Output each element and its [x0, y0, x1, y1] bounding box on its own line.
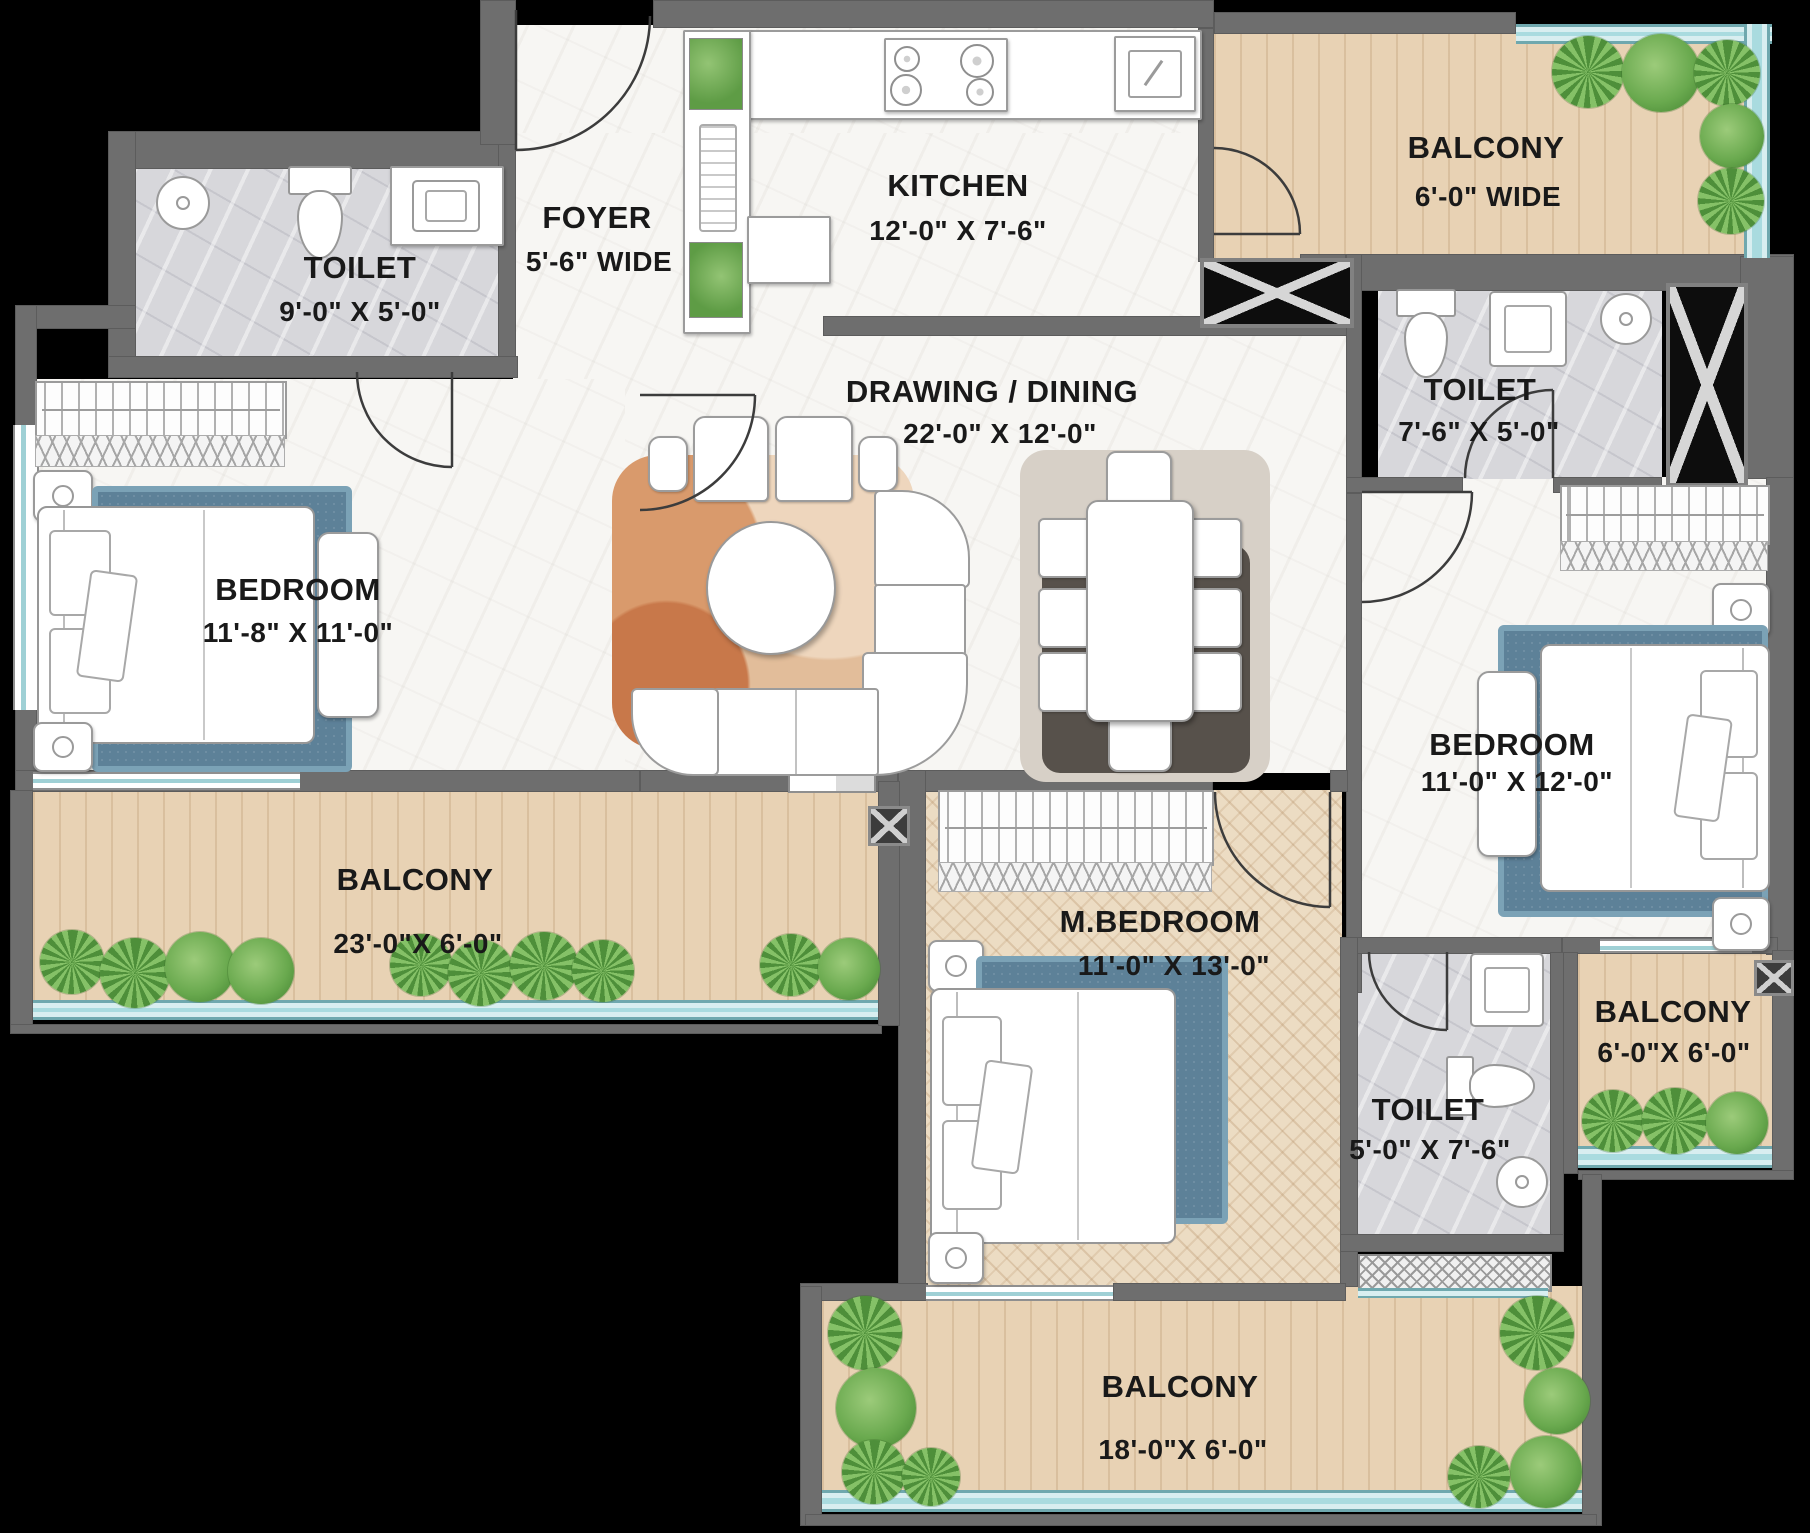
dining-chair — [1038, 588, 1092, 648]
bedroom1-dims: 11'-8" X 11'-0" — [203, 617, 394, 649]
wall — [805, 1514, 1597, 1526]
plant-icon — [902, 1448, 960, 1506]
plant-icon — [818, 938, 880, 1000]
wall — [108, 131, 136, 365]
duct-shaft-icon — [1666, 283, 1748, 487]
plant-icon — [1552, 36, 1624, 108]
wall — [108, 131, 516, 169]
wc-toilet-icon — [1396, 289, 1456, 381]
bedroom1-balcony-window — [33, 772, 300, 790]
floor-plan-canvas: TOILET 9'-0" X 5'-0" FOYER 5'-6" WIDE KI… — [0, 0, 1810, 1533]
wall — [1578, 1170, 1794, 1180]
toilet1-label: TOILET — [304, 250, 417, 286]
balcony3-dims: 6'-0"X 6'-0" — [1597, 1037, 1750, 1069]
plant-icon — [1700, 104, 1764, 168]
plant-icon — [1622, 34, 1700, 112]
wall — [800, 1286, 822, 1526]
balcony1-dims: 6'-0" WIDE — [1415, 181, 1561, 213]
side-table — [858, 436, 898, 492]
shower-icon — [156, 176, 210, 230]
plant-icon — [40, 930, 104, 994]
toilet3-window-sill — [1358, 1288, 1548, 1298]
wc-toilet-icon — [288, 166, 352, 262]
bedroom1-label: BEDROOM — [215, 572, 380, 608]
mbedroom-dims: 11'-0" X 13'-0" — [1078, 950, 1270, 982]
wall — [1562, 952, 1578, 1174]
wall — [1582, 1174, 1602, 1526]
dining-chair — [1188, 588, 1242, 648]
shower-icon — [1600, 293, 1652, 345]
wall — [108, 356, 518, 378]
wall — [480, 0, 516, 145]
kitchen-dims: 12'-0" X 7'-6" — [869, 215, 1047, 247]
wall — [1340, 1234, 1564, 1252]
bedroom2-dims: 11'-0" X 12'-0" — [1421, 766, 1613, 798]
bed-symbol — [930, 988, 1176, 1244]
bedroom1-window — [13, 425, 39, 710]
toilet3-louver-window — [1358, 1254, 1552, 1292]
plant-icon — [1642, 1088, 1708, 1154]
wall — [1346, 477, 1463, 493]
balcony4-dims: 18'-0"X 6'-0" — [1098, 1434, 1267, 1466]
nightstand — [33, 722, 93, 772]
coffee-table-icon — [706, 521, 836, 655]
washbasin-icon — [1470, 953, 1544, 1027]
toilet1-dims: 9'-0" X 5'-0" — [279, 296, 441, 328]
plant-icon — [572, 940, 634, 1002]
wall — [1214, 12, 1516, 34]
plant-icon — [1500, 1296, 1574, 1370]
washbasin-icon — [1489, 291, 1567, 367]
wardrobe-symbol — [1560, 485, 1770, 545]
wall — [898, 770, 926, 1288]
dining-table-icon — [1086, 500, 1194, 722]
wall — [653, 0, 1214, 28]
washbasin-icon — [412, 180, 480, 232]
plant-icon — [1582, 1090, 1644, 1152]
kitchen-sink-icon — [1114, 36, 1196, 112]
kitchen-tall-unit — [683, 30, 751, 334]
kitchen-cabinet — [747, 216, 831, 284]
foyer-label: FOYER — [542, 200, 651, 236]
balcony3-label: BALCONY — [1595, 994, 1752, 1030]
kitchen-label: KITCHEN — [887, 168, 1028, 204]
plant-icon — [828, 1296, 902, 1370]
balcony2-dims: 23'-0"X 6'-0" — [333, 928, 502, 960]
column-marker-icon — [868, 806, 910, 846]
plant-icon — [1510, 1436, 1582, 1508]
drawing-dining-dims: 22'-0" X 12'-0" — [903, 418, 1097, 450]
plant-icon — [836, 1368, 916, 1448]
wall — [1330, 770, 1348, 792]
plant-icon — [1706, 1092, 1768, 1154]
wall — [1550, 952, 1564, 1236]
nightstand — [1712, 897, 1770, 951]
dining-chair — [1038, 652, 1092, 712]
plant-icon — [1448, 1446, 1510, 1508]
plant-icon — [1524, 1368, 1590, 1434]
plant-icon — [100, 938, 170, 1008]
plant-icon — [1698, 168, 1764, 234]
wall — [1346, 493, 1362, 993]
stove-icon — [884, 38, 1008, 112]
plant-icon — [165, 932, 235, 1002]
duct-shaft-icon — [1200, 258, 1354, 328]
plant-icon — [760, 934, 822, 996]
dining-chair — [1188, 518, 1242, 578]
plant-icon — [842, 1440, 906, 1504]
sofa-symbol — [874, 584, 966, 656]
foyer-dims: 5'-6" WIDE — [526, 246, 672, 278]
wall — [1740, 256, 1794, 479]
sofa-symbol — [713, 688, 879, 776]
dining-chair — [1108, 714, 1172, 772]
nightstand — [928, 1232, 984, 1284]
mbedroom-label: M.BEDROOM — [1060, 904, 1261, 940]
balcony4-label: BALCONY — [1102, 1369, 1259, 1405]
armchair — [775, 416, 853, 502]
balcony1-label: BALCONY — [1408, 130, 1565, 166]
wall — [1113, 1283, 1346, 1301]
wardrobe-symbol — [938, 790, 1214, 866]
plant-icon — [228, 938, 294, 1004]
toilet2-label: TOILET — [1424, 372, 1537, 408]
wall — [1766, 477, 1794, 955]
wall — [10, 1024, 882, 1034]
wall — [1340, 937, 1562, 954]
balcony2-slider-door — [788, 773, 876, 793]
wall — [10, 790, 33, 1033]
wardrobe-symbol — [35, 381, 287, 439]
dining-chair — [1188, 652, 1242, 712]
bench-ottoman — [1477, 671, 1537, 857]
side-table — [648, 436, 688, 492]
mbedroom-balcony-window — [926, 1285, 1113, 1301]
wardrobe-folding-doors — [35, 435, 285, 467]
toilet3-dims: 5'-0" X 7'-6" — [1349, 1134, 1511, 1166]
plant-icon — [1694, 40, 1760, 106]
armchair — [693, 416, 769, 502]
bedroom2-label: BEDROOM — [1429, 727, 1594, 763]
toilet3-label: TOILET — [1372, 1092, 1485, 1128]
dining-chair — [1038, 518, 1092, 578]
drawing-dining-label: DRAWING / DINING — [846, 374, 1138, 410]
wardrobe-folding-doors — [1560, 541, 1768, 571]
balcony2-railing — [33, 1000, 878, 1020]
plant-icon — [510, 932, 578, 1000]
balcony2-label: BALCONY — [337, 862, 494, 898]
toilet2-dims: 7'-6" X 5'-0" — [1398, 416, 1560, 448]
wardrobe-folding-doors — [938, 862, 1212, 892]
column-marker-icon — [1754, 960, 1794, 996]
